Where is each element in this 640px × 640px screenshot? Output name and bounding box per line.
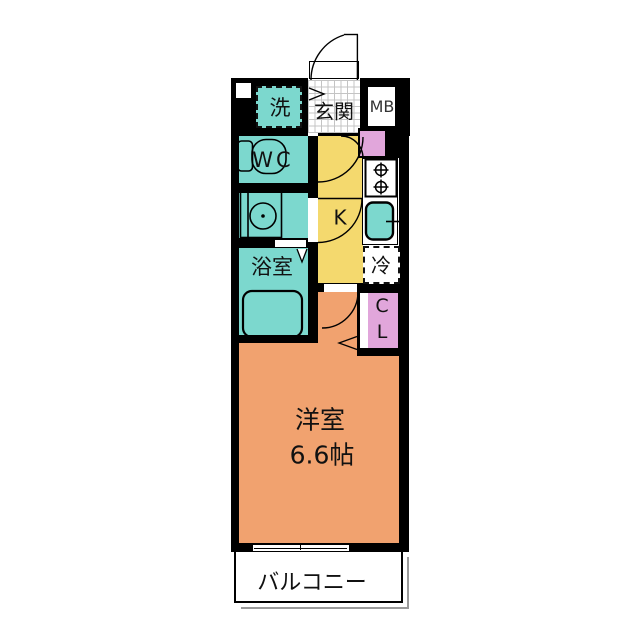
- pipe-space-box: [360, 131, 385, 156]
- wall-wc-washroom: [239, 183, 308, 193]
- bathroom-door-opening: [275, 240, 306, 247]
- washroom-floor: [239, 193, 308, 240]
- entrance-step-sill: [318, 133, 363, 136]
- closet-label: C L: [375, 293, 388, 345]
- balcony-label: バルコニー: [257, 570, 367, 595]
- washroom-door-opening: [308, 198, 318, 242]
- wc-label: WC: [252, 148, 293, 172]
- balcony-window: [252, 544, 350, 552]
- wall-right: [399, 78, 409, 552]
- closet-door-strip: [360, 293, 368, 348]
- window-center-tick: [300, 545, 301, 550]
- kitchen-label: K: [333, 207, 346, 230]
- main-room-label: 洋室: [295, 407, 345, 436]
- balcony-shadow-right: [407, 557, 409, 609]
- wall-left: [231, 136, 239, 552]
- washer-label: 洗: [270, 96, 291, 120]
- wall-bath-room: [231, 335, 318, 343]
- entrance-doorway: [309, 61, 359, 79]
- bathroom-label: 浴室: [251, 255, 293, 279]
- entrance-label: 玄関: [314, 101, 354, 124]
- kitchen-counter: [362, 158, 398, 245]
- refrigerator-label: 冷: [371, 255, 391, 278]
- meter-box-label: MB: [370, 98, 395, 116]
- wall-notch: [236, 83, 251, 98]
- main-room-size: 6.6帖: [290, 442, 355, 471]
- floor-plan: 洗 玄関 MB WC 浴室 K 冷 C L 洋室 6.6帖 バルコニー: [0, 0, 640, 640]
- room-door-opening: [324, 284, 357, 292]
- balcony-shadow-bottom: [241, 607, 409, 609]
